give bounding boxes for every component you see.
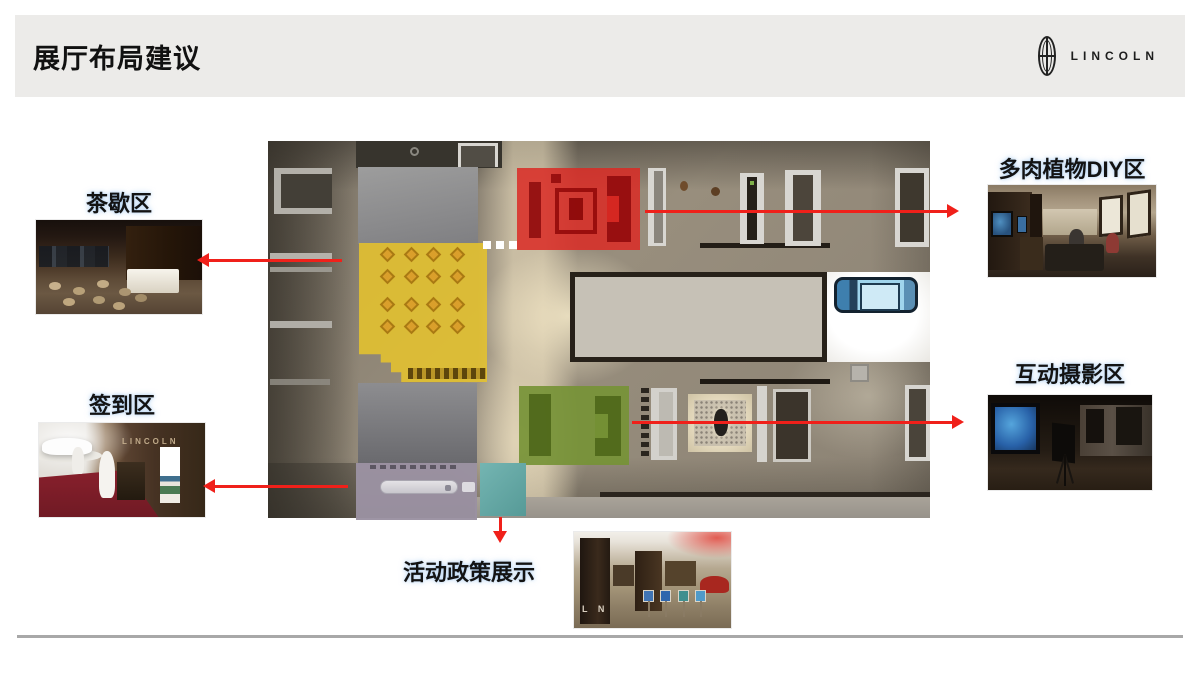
display-corridor [570, 272, 827, 362]
display-stand [895, 168, 929, 247]
gray-room-lower [358, 383, 477, 463]
lincoln-badge-icon [1038, 36, 1056, 76]
arrow-tea-break [208, 259, 342, 262]
wall-frame [1099, 195, 1123, 238]
arrow-interactive-photo [632, 421, 953, 424]
tea-break-photo [36, 220, 202, 314]
arrowhead-succulent-diy [947, 204, 959, 218]
rollup-banner [160, 447, 180, 503]
tv-screen [1017, 216, 1027, 233]
display-stand [651, 388, 677, 460]
interactive-photo-zone [519, 386, 629, 465]
policy-easel [660, 590, 671, 602]
policy-easel [678, 590, 689, 602]
bottom-divider [17, 635, 1183, 638]
gray-room-upper [358, 167, 478, 244]
arrow-sign-in [214, 485, 348, 488]
interactive-photo-photo [988, 395, 1152, 490]
label-sign-in: 签到区 [39, 388, 205, 420]
arrow-policy-display [499, 517, 502, 532]
arrowhead-interactive-photo [952, 415, 964, 429]
display-stand [648, 168, 666, 246]
wall-bar [700, 379, 830, 384]
label-interactive-photo: 互动摄影区 [988, 357, 1152, 389]
lincoln-wall-sign: LINCOLN [122, 437, 179, 446]
label-succulent-diy: 多肉植物DIY区 [988, 152, 1156, 184]
zone-caption-strip [408, 368, 486, 379]
photo-backdrop-screen [991, 403, 1040, 454]
bottom-walkway [475, 497, 930, 518]
floor-crosswalk [483, 241, 517, 249]
brand-name: LINCOLN [1071, 49, 1159, 63]
tea-table-cluster [424, 297, 470, 341]
white-car [42, 438, 92, 455]
arrowhead-sign-in [203, 479, 215, 493]
tv-screen [991, 211, 1013, 237]
reception-side-table [462, 482, 475, 492]
title-banner: 展厅布局建议 LINCOLN [15, 15, 1185, 97]
sign-in-desk [117, 462, 145, 500]
succulent-diy-photo [988, 185, 1156, 277]
tripod [1064, 455, 1066, 486]
bronze-pillar: L N [580, 538, 610, 624]
exhibit-car [834, 277, 918, 313]
succulent-diy-zone [517, 168, 640, 250]
left-bench [274, 168, 332, 214]
wall-frame [1127, 190, 1151, 239]
left-shelf [270, 379, 330, 385]
person-marker [711, 187, 720, 196]
person-marker [680, 181, 688, 191]
presentation-slide: 展厅布局建议 LINCOLN [0, 0, 1200, 675]
tea-table-cluster [424, 247, 470, 291]
reception-desk [380, 480, 458, 494]
display-panel [773, 389, 811, 462]
entrance [458, 143, 498, 167]
page-title: 展厅布局建议 [33, 37, 201, 76]
corridor-light-slats [577, 279, 820, 355]
left-shelf [270, 267, 332, 272]
brand-logo: LINCOLN [1038, 36, 1159, 76]
floor-box [850, 364, 869, 382]
door-handle [410, 147, 419, 156]
label-policy-display: 活动政策展示 [403, 555, 553, 587]
label-tea-break: 茶歇区 [36, 186, 202, 218]
sign-in-photo: LINCOLN [39, 423, 205, 517]
policy-easel [643, 590, 654, 602]
arrow-succulent-diy [645, 210, 948, 213]
display-stand [757, 386, 767, 462]
policy-easel [695, 590, 706, 602]
showroom-floorplan [268, 141, 930, 518]
sign-in-zone [356, 463, 477, 520]
tea-table-cluster [378, 247, 424, 291]
left-shelf [270, 321, 332, 328]
policy-display-photo: L N [574, 532, 731, 628]
floor-shading [268, 463, 356, 518]
policy-display-zone [480, 463, 526, 516]
arrowhead-policy-display [493, 531, 507, 543]
tea-table-cluster [378, 297, 424, 341]
display-stand [785, 170, 821, 246]
arrowhead-tea-break [197, 253, 209, 267]
display-stand [740, 173, 764, 244]
